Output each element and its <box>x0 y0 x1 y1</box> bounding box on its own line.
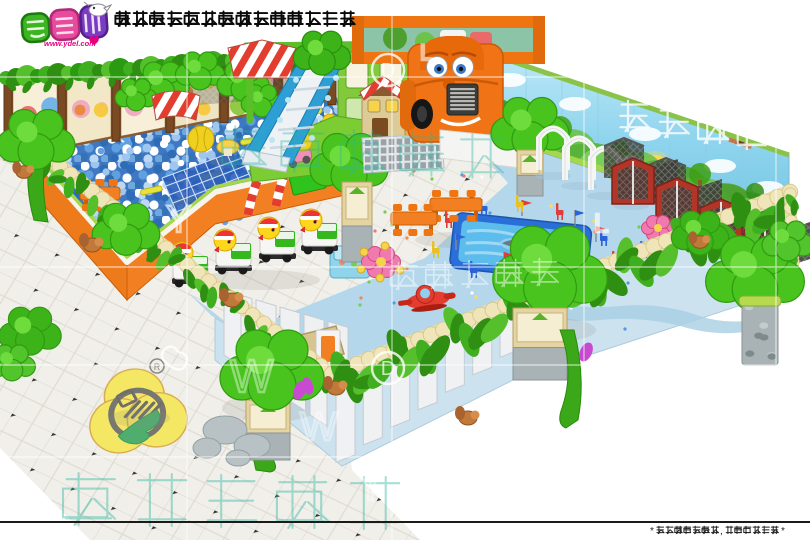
svg-text:Y: Y <box>166 199 191 241</box>
svg-text:,: , <box>720 526 723 537</box>
svg-text:D: D <box>381 358 395 380</box>
svg-text:L: L <box>420 40 432 65</box>
svg-text:*: * <box>781 526 785 537</box>
svg-text:R: R <box>154 362 161 372</box>
svg-text:W: W <box>230 350 274 402</box>
svg-text:L: L <box>594 208 608 238</box>
svg-text:*: * <box>650 526 654 537</box>
svg-text:www.ydel.com: www.ydel.com <box>44 39 96 48</box>
svg-text:D: D <box>381 60 395 82</box>
svg-text:Y: Y <box>355 458 386 510</box>
svg-text:W: W <box>300 405 338 449</box>
